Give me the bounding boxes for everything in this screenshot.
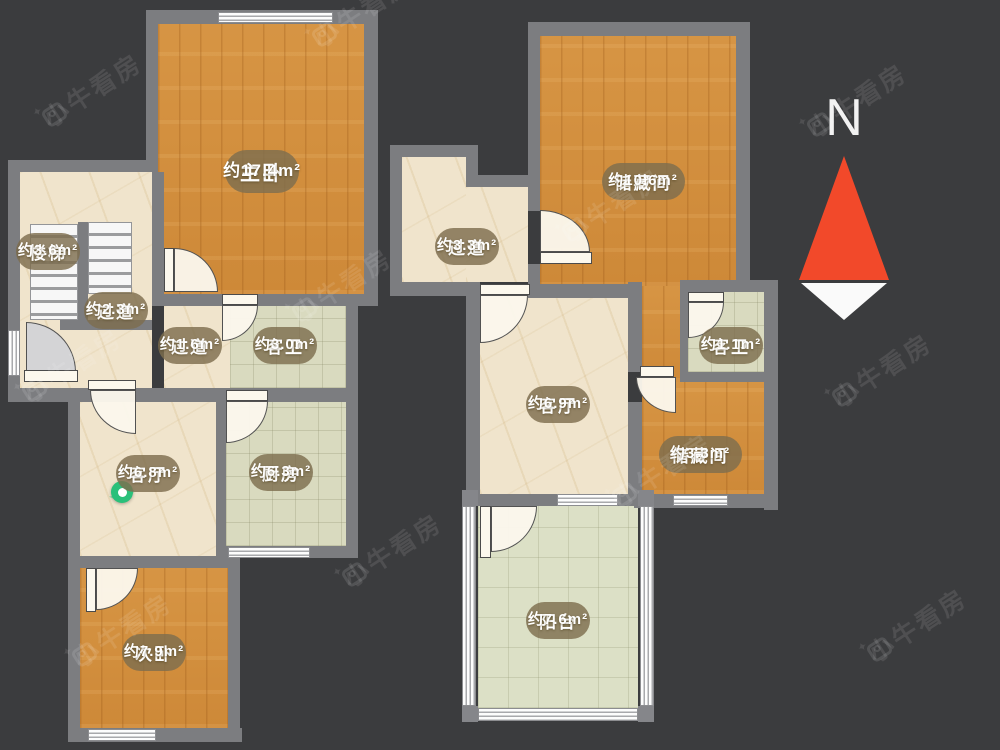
wall-post <box>638 706 654 722</box>
wall-segment <box>528 284 642 298</box>
room-area: 约3.3m² <box>437 234 497 255</box>
wall-post <box>462 490 478 506</box>
wall-segment <box>528 22 750 36</box>
wall-segment <box>680 292 688 372</box>
room-area: 约3.0m² <box>255 333 315 354</box>
wall-segment <box>68 556 240 568</box>
watermark-text: 小牛看房 <box>35 44 149 135</box>
wall-segment <box>466 282 480 506</box>
window <box>88 729 156 741</box>
window <box>462 506 476 706</box>
wall-segment <box>146 24 158 172</box>
door-leaf-second-bedroom <box>86 568 96 612</box>
door-leaf-corridor <box>640 366 674 377</box>
door-leaf-kitchen <box>226 390 268 401</box>
stair-treads <box>88 222 132 294</box>
room-area: 约3.6m² <box>18 239 78 260</box>
floorplan-canvas: 主卧 约17.4m² 楼梯 约3.6m² 过道 约2.3m² 过道 约1.6m²… <box>0 0 1000 750</box>
wall-segment <box>466 175 540 187</box>
wall-segment <box>528 22 540 187</box>
door-leaf-balcony <box>480 506 491 558</box>
window <box>8 330 20 376</box>
wall-post <box>462 706 478 722</box>
room-area: 约7.6m² <box>528 608 588 629</box>
watermark-text: 小牛看房 <box>860 579 974 670</box>
room-area: 约6.9m² <box>528 392 588 413</box>
wall-segment <box>390 145 478 157</box>
door-leaf-guest-bathroom <box>222 294 258 305</box>
room-area: 约6.3m² <box>251 460 311 481</box>
door-leaf-guest-bathroom-right <box>688 292 724 302</box>
door-leaf-storage-large <box>540 252 592 264</box>
room-area: 约2.3m² <box>86 298 146 319</box>
window <box>640 506 654 706</box>
wall-segment <box>680 372 778 382</box>
wall-segment <box>68 402 80 740</box>
wall-segment <box>628 282 642 372</box>
compass-arrow-icon <box>797 152 891 324</box>
wall-segment <box>736 22 750 292</box>
door-leaf-master-bedroom <box>164 248 174 292</box>
wall-segment <box>528 187 540 211</box>
room-area: 约17.4m² <box>223 156 301 181</box>
wall-segment <box>8 160 158 172</box>
wall-segment <box>152 172 164 306</box>
room-area: 约6.8m² <box>118 461 178 482</box>
window <box>478 708 638 721</box>
wall-segment <box>346 294 358 558</box>
wall-segment <box>228 556 240 740</box>
wall-segment <box>216 402 226 556</box>
door-leaf-living-right <box>480 284 530 295</box>
window <box>228 547 310 558</box>
room-area: 约1.1m² <box>701 333 761 354</box>
door-leaf-living-room <box>88 380 136 390</box>
window <box>673 495 728 506</box>
room-area: 约1.6m² <box>160 333 220 354</box>
watermark-text: 小牛看房 <box>825 324 939 415</box>
wall-segment <box>764 280 778 510</box>
